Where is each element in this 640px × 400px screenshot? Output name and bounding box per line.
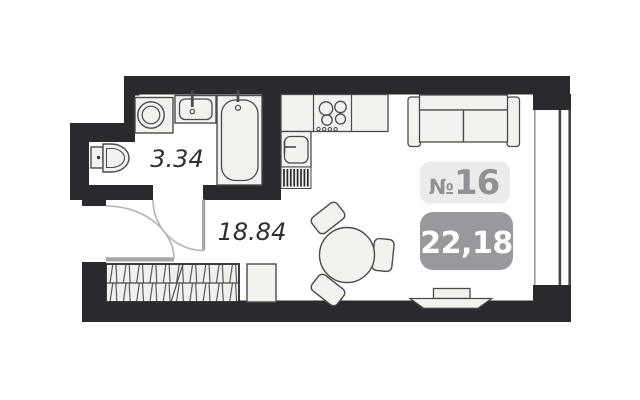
sofa-seat (420, 110, 464, 142)
floor-plan: 3.34 18.84 №16 22,18 (0, 0, 640, 400)
total-area-value: 22,18 (420, 226, 512, 261)
valve-icon (278, 154, 281, 158)
sofa-backrest (420, 95, 508, 110)
bathtub (217, 90, 262, 185)
bathroom-sink (175, 91, 216, 124)
wall-bathroom-bottom-left (70, 185, 153, 200)
door-swing-arc (153, 200, 204, 251)
toilet (91, 144, 129, 172)
window (534, 110, 571, 285)
valve-icon (278, 141, 281, 145)
window-glass-line-inner (559, 110, 562, 285)
window-glass-line-outer (568, 110, 571, 285)
bathroom-area-label: 3.34 (150, 145, 203, 173)
unit-number-value: 16 (454, 163, 499, 203)
door-leaf (106, 257, 174, 261)
total-area-badge: 22,18 (420, 212, 513, 270)
sofa (408, 95, 520, 147)
wardrobe (106, 264, 239, 302)
sofa-armrest (507, 97, 520, 147)
wall-bathroom-kitchen-divider (262, 94, 281, 200)
wall-bottom (82, 301, 571, 323)
kitchen-vent-grille (281, 167, 311, 189)
wall-topright-corner (533, 94, 571, 110)
valve-icon (135, 91, 140, 96)
bathroom-door (153, 200, 205, 251)
nightstand (247, 264, 276, 302)
window-sill-line (534, 110, 536, 285)
faucet-icon (237, 90, 240, 102)
living-room-area-label: 18.84 (218, 218, 287, 246)
unit-number-prefix: № (429, 175, 454, 199)
wall-bottomleft-block (82, 262, 106, 322)
floor-plan-svg: 3.34 18.84 №16 22,18 (0, 0, 640, 400)
kitchen-sink (278, 132, 312, 168)
sofa-armrest (408, 97, 421, 147)
door-leaf (202, 200, 205, 251)
washing-machine (135, 91, 174, 134)
dining-table (320, 228, 375, 283)
faucet-icon (191, 91, 194, 108)
unit-number-badge: №16 (420, 162, 510, 204)
radiator (410, 289, 492, 309)
sofa-seat (464, 110, 508, 142)
kitchen-counter (281, 95, 388, 132)
entrance-door (106, 206, 174, 262)
